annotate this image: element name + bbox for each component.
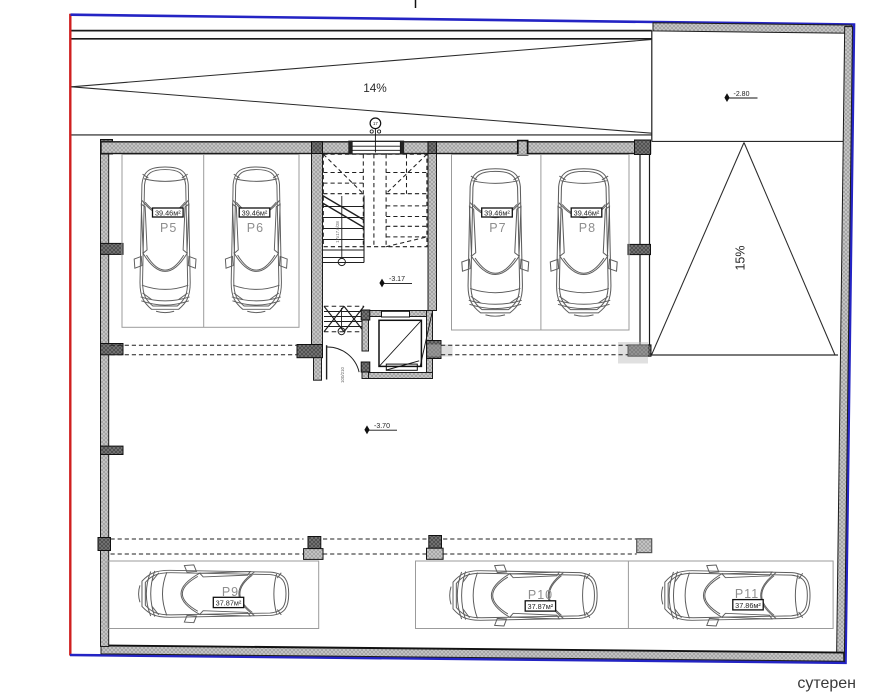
svg-text:-3.70: -3.70 — [374, 423, 390, 430]
svg-text:100/210: 100/210 — [340, 367, 345, 383]
svg-text:P10: P10 — [528, 588, 553, 602]
svg-text:14%: 14% — [363, 81, 387, 95]
svg-text:сутерен: сутерен — [797, 675, 856, 692]
svg-text:P5: P5 — [160, 221, 177, 235]
svg-text:39.46м²: 39.46м² — [484, 208, 510, 217]
svg-text:37.86м²: 37.86м² — [735, 601, 761, 610]
svg-text:P11: P11 — [735, 587, 759, 601]
svg-text:P7: P7 — [489, 221, 506, 235]
svg-text:37.87м²: 37.87м² — [528, 602, 554, 611]
svg-text:-3.17: -3.17 — [389, 276, 405, 283]
svg-text:39.46м²: 39.46м² — [155, 208, 181, 217]
svg-text:17: 17 — [373, 121, 378, 126]
svg-text:15%: 15% — [734, 245, 748, 270]
svg-text:P8: P8 — [579, 221, 596, 235]
svg-text:39.46м²: 39.46м² — [242, 208, 268, 217]
svg-text:-2.80: -2.80 — [734, 91, 750, 98]
svg-text:17x17.6/28: 17x17.6/28 — [335, 221, 340, 243]
svg-text:P6: P6 — [247, 221, 264, 235]
svg-text:39.46м²: 39.46м² — [574, 208, 600, 217]
svg-text:37.87м²: 37.87м² — [216, 599, 242, 608]
